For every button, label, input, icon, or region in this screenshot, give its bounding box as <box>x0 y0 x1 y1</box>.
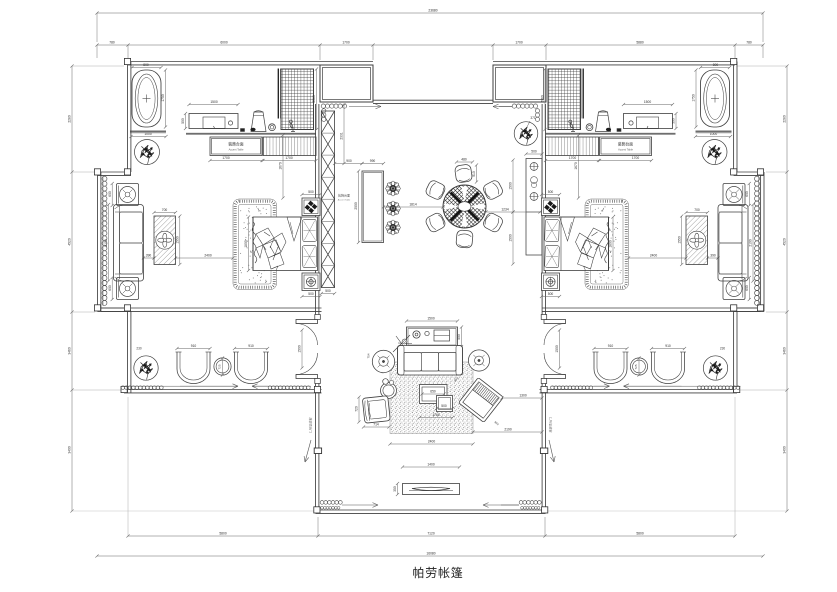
svg-text:裝飾台面: 裝飾台面 <box>618 142 633 147</box>
svg-text:23680: 23680 <box>428 8 437 12</box>
svg-text:780: 780 <box>746 40 752 44</box>
svg-text:1670: 1670 <box>279 162 283 170</box>
svg-text:350: 350 <box>393 486 397 492</box>
svg-text:4520: 4520 <box>783 238 787 246</box>
svg-text:500: 500 <box>457 334 461 340</box>
svg-text:371: 371 <box>530 116 536 120</box>
svg-text:Accent Table: Accent Table <box>338 199 351 202</box>
svg-text:1234: 1234 <box>501 207 509 211</box>
svg-text:725: 725 <box>218 364 222 369</box>
svg-text:910: 910 <box>248 344 254 348</box>
svg-text:600: 600 <box>745 285 749 291</box>
svg-text:1750: 1750 <box>692 94 696 102</box>
svg-text:480: 480 <box>461 157 467 161</box>
svg-text:2280: 2280 <box>68 115 72 123</box>
svg-text:1700: 1700 <box>285 156 293 160</box>
svg-text:1300: 1300 <box>519 393 527 397</box>
svg-text:1500: 1500 <box>427 316 435 320</box>
svg-text:16080: 16080 <box>426 551 435 555</box>
svg-text:910: 910 <box>665 344 671 348</box>
svg-text:990: 990 <box>370 159 376 163</box>
svg-text:600: 600 <box>108 285 112 291</box>
svg-text:1760: 1760 <box>432 413 440 417</box>
svg-text:500: 500 <box>672 118 676 124</box>
svg-text:500: 500 <box>308 292 314 296</box>
svg-text:600: 600 <box>745 191 749 197</box>
svg-text:1500: 1500 <box>509 234 513 242</box>
svg-text:1400: 1400 <box>427 462 435 466</box>
svg-text:1000: 1000 <box>144 132 152 136</box>
svg-text:裝飾台面: 裝飾台面 <box>338 193 350 198</box>
svg-text:1500: 1500 <box>210 100 218 104</box>
svg-text:3400: 3400 <box>68 446 72 454</box>
svg-text:3460: 3460 <box>783 347 787 355</box>
svg-text:700: 700 <box>694 208 700 212</box>
svg-text:1670: 1670 <box>574 162 578 170</box>
svg-text:2100: 2100 <box>749 239 753 247</box>
svg-text:500: 500 <box>441 404 447 408</box>
svg-text:1814: 1814 <box>409 202 417 206</box>
svg-text:1700: 1700 <box>342 40 350 44</box>
svg-text:1750: 1750 <box>161 94 165 102</box>
svg-text:淋浴喷头门: 淋浴喷头门 <box>309 417 314 432</box>
svg-text:7120: 7120 <box>427 531 435 535</box>
svg-text:700: 700 <box>162 208 168 212</box>
svg-text:2400: 2400 <box>428 439 436 443</box>
svg-text:淋浴喷头门: 淋浴喷头门 <box>548 417 553 432</box>
svg-text:1550: 1550 <box>677 236 681 244</box>
svg-text:2060: 2060 <box>312 95 316 103</box>
svg-text:1700: 1700 <box>222 156 230 160</box>
svg-text:500: 500 <box>181 118 185 124</box>
svg-text:1800: 1800 <box>609 240 613 248</box>
svg-text:5800: 5800 <box>219 531 227 535</box>
svg-text:1500: 1500 <box>509 182 513 190</box>
svg-text:780: 780 <box>109 40 115 44</box>
svg-text:2400: 2400 <box>204 253 212 257</box>
svg-text:帕劳帐篷: 帕劳帐篷 <box>412 565 463 580</box>
svg-text:600: 600 <box>108 191 112 197</box>
svg-text:800: 800 <box>713 63 719 67</box>
svg-text:720: 720 <box>355 406 359 412</box>
svg-text:500: 500 <box>548 292 554 296</box>
svg-text:6000: 6000 <box>220 40 228 44</box>
svg-text:1700: 1700 <box>632 156 640 160</box>
svg-text:500: 500 <box>325 289 331 293</box>
svg-text:754: 754 <box>367 353 371 358</box>
svg-text:2400: 2400 <box>650 253 658 257</box>
svg-text:3400: 3400 <box>783 446 787 454</box>
svg-text:900: 900 <box>346 159 352 163</box>
svg-text:714: 714 <box>373 422 379 426</box>
svg-text:390: 390 <box>146 253 152 257</box>
svg-text:910: 910 <box>608 344 614 348</box>
svg-text:800: 800 <box>143 63 149 67</box>
svg-text:910: 910 <box>191 344 197 348</box>
svg-text:230: 230 <box>136 347 142 351</box>
svg-text:2060: 2060 <box>541 95 545 103</box>
svg-text:1700: 1700 <box>569 156 577 160</box>
svg-text:1550: 1550 <box>175 236 179 244</box>
svg-text:500: 500 <box>531 149 537 153</box>
svg-text:1500: 1500 <box>555 345 559 353</box>
svg-text:1800: 1800 <box>244 240 248 248</box>
svg-text:1500: 1500 <box>298 345 302 353</box>
svg-text:1700: 1700 <box>515 40 523 44</box>
svg-text:500: 500 <box>308 190 314 194</box>
svg-text:2280: 2280 <box>783 115 787 123</box>
svg-text:1000: 1000 <box>710 132 718 136</box>
svg-text:910: 910 <box>472 171 476 177</box>
svg-text:5880: 5880 <box>636 40 644 44</box>
svg-text:2190: 2190 <box>504 427 512 431</box>
svg-text:230: 230 <box>720 347 726 351</box>
svg-text:3460: 3460 <box>68 347 72 355</box>
svg-text:650: 650 <box>430 389 436 393</box>
svg-text:500: 500 <box>548 190 554 194</box>
svg-text:2331: 2331 <box>340 132 344 140</box>
svg-text:1500: 1500 <box>644 100 652 104</box>
svg-text:4520: 4520 <box>68 238 72 246</box>
svg-text:2000: 2000 <box>354 202 358 210</box>
svg-text:裝飾台面: 裝飾台面 <box>228 142 243 147</box>
svg-text:390: 390 <box>710 253 716 257</box>
svg-text:Accent Table: Accent Table <box>618 148 633 152</box>
svg-text:Accent Table: Accent Table <box>229 148 244 152</box>
svg-text:725: 725 <box>634 364 638 369</box>
svg-text:5800: 5800 <box>636 531 644 535</box>
